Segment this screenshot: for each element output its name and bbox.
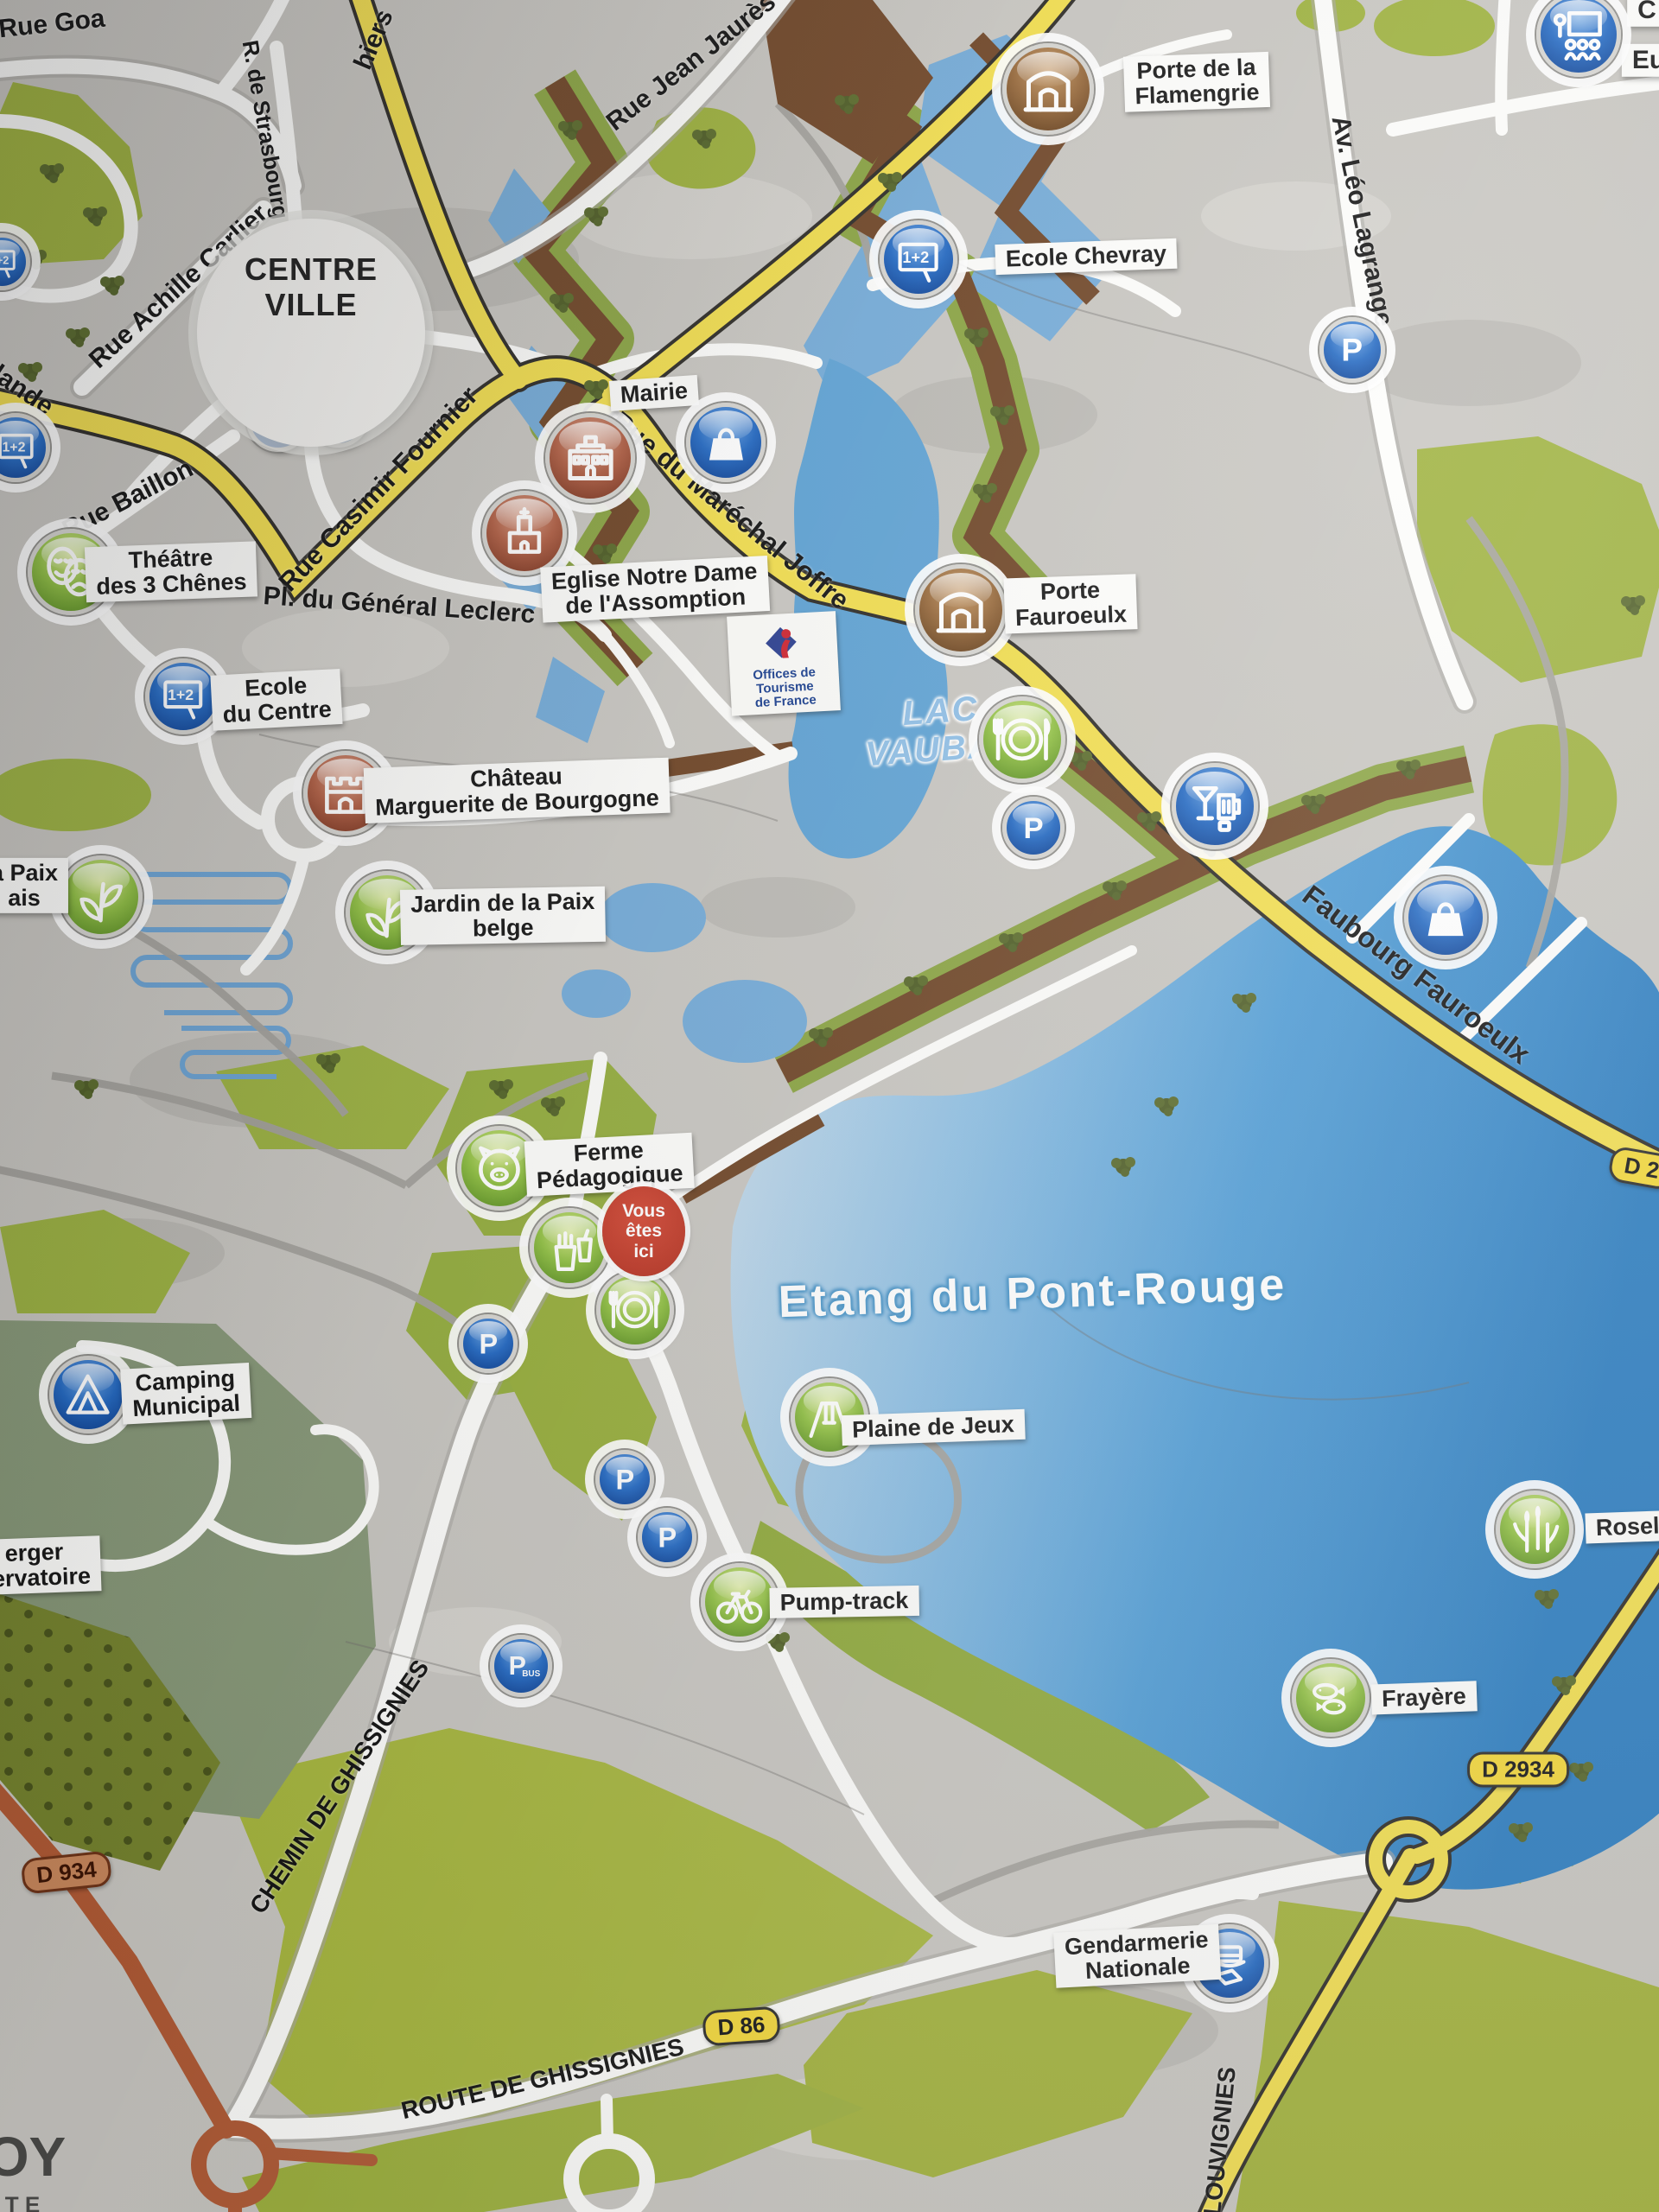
tourism-office-icon — [758, 620, 807, 669]
centre-ville-title: CENTRE VILLE — [197, 251, 425, 323]
tourism-office-text: Offices de Tourisme de France — [733, 664, 836, 710]
map-photo: Rue GoahiersR. de StrasbourgRue Jean Jau… — [0, 0, 1659, 2212]
tourism-office-logo: Offices de Tourisme de France — [727, 611, 841, 716]
centre-ville-circle: CENTRE VILLE — [197, 219, 425, 447]
you-are-here-marker: Vous êtes ici — [602, 1186, 685, 1276]
